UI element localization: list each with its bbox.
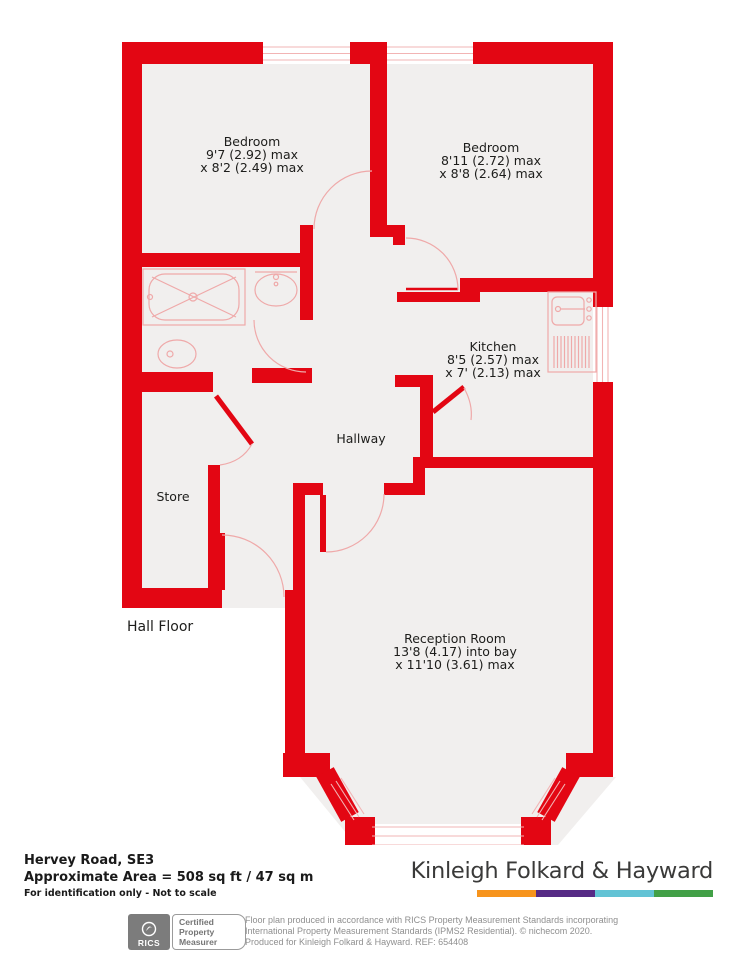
floorplan-drawing: Bedroom 9'7 (2.92) max x 8'2 (2.49) max … xyxy=(0,0,736,845)
property-address: Hervey Road, SE3 xyxy=(24,852,313,869)
svg-text:x 8'8 (2.64) max: x 8'8 (2.64) max xyxy=(439,166,542,181)
room-label-store: Store xyxy=(156,489,189,504)
rics-lion-icon xyxy=(140,920,158,938)
brand-bar-segment-purple xyxy=(536,890,595,897)
reception-door-leaf xyxy=(320,495,326,552)
certified-property-measurer-box: Certified Property Measurer xyxy=(172,914,246,950)
svg-text:x 8'2 (2.49) max: x 8'2 (2.49) max xyxy=(200,160,303,175)
agency-logo-bar xyxy=(477,890,713,897)
certification-line: Property xyxy=(179,927,245,937)
certification-line: Certified xyxy=(179,917,245,927)
svg-text:x 7' (2.13) max: x 7' (2.13) max xyxy=(445,365,541,380)
compliance-smallprint: Floor plan produced in accordance with R… xyxy=(245,915,618,949)
property-summary: Hervey Road, SE3 Approximate Area = 508 … xyxy=(24,852,313,899)
agency-logo-text: Kinleigh Folkard & Hayward xyxy=(373,858,713,884)
rics-logo: RICS xyxy=(128,914,170,950)
certification-line: Measurer xyxy=(179,937,245,947)
smallprint-line: Floor plan produced in accordance with R… xyxy=(245,915,618,926)
brand-bar-segment-orange xyxy=(477,890,536,897)
brand-bar-segment-green xyxy=(654,890,713,897)
rics-org-label: RICS xyxy=(138,938,160,948)
approximate-area: Approximate Area = 508 sq ft / 47 sq m xyxy=(24,869,313,886)
entrance-door-leaf xyxy=(220,533,225,590)
rics-certification-badge: RICS Certified Property Measurer xyxy=(128,914,246,950)
brand-bar-segment-teal xyxy=(595,890,654,897)
floor-name-label: Hall Floor xyxy=(127,619,193,635)
disclaimer-text: For identification only - Not to scale xyxy=(24,888,313,899)
smallprint-line: International Property Measurement Stand… xyxy=(245,926,618,937)
floorplan-page: Bedroom 9'7 (2.92) max x 8'2 (2.49) max … xyxy=(0,0,736,960)
room-label-reception: Reception Room 13'8 (4.17) into bay x 11… xyxy=(393,631,517,672)
svg-text:x 11'10 (3.61) max: x 11'10 (3.61) max xyxy=(395,657,514,672)
room-label-hallway: Hallway xyxy=(336,431,386,446)
smallprint-line: Produced for Kinleigh Folkard & Hayward.… xyxy=(245,937,618,948)
